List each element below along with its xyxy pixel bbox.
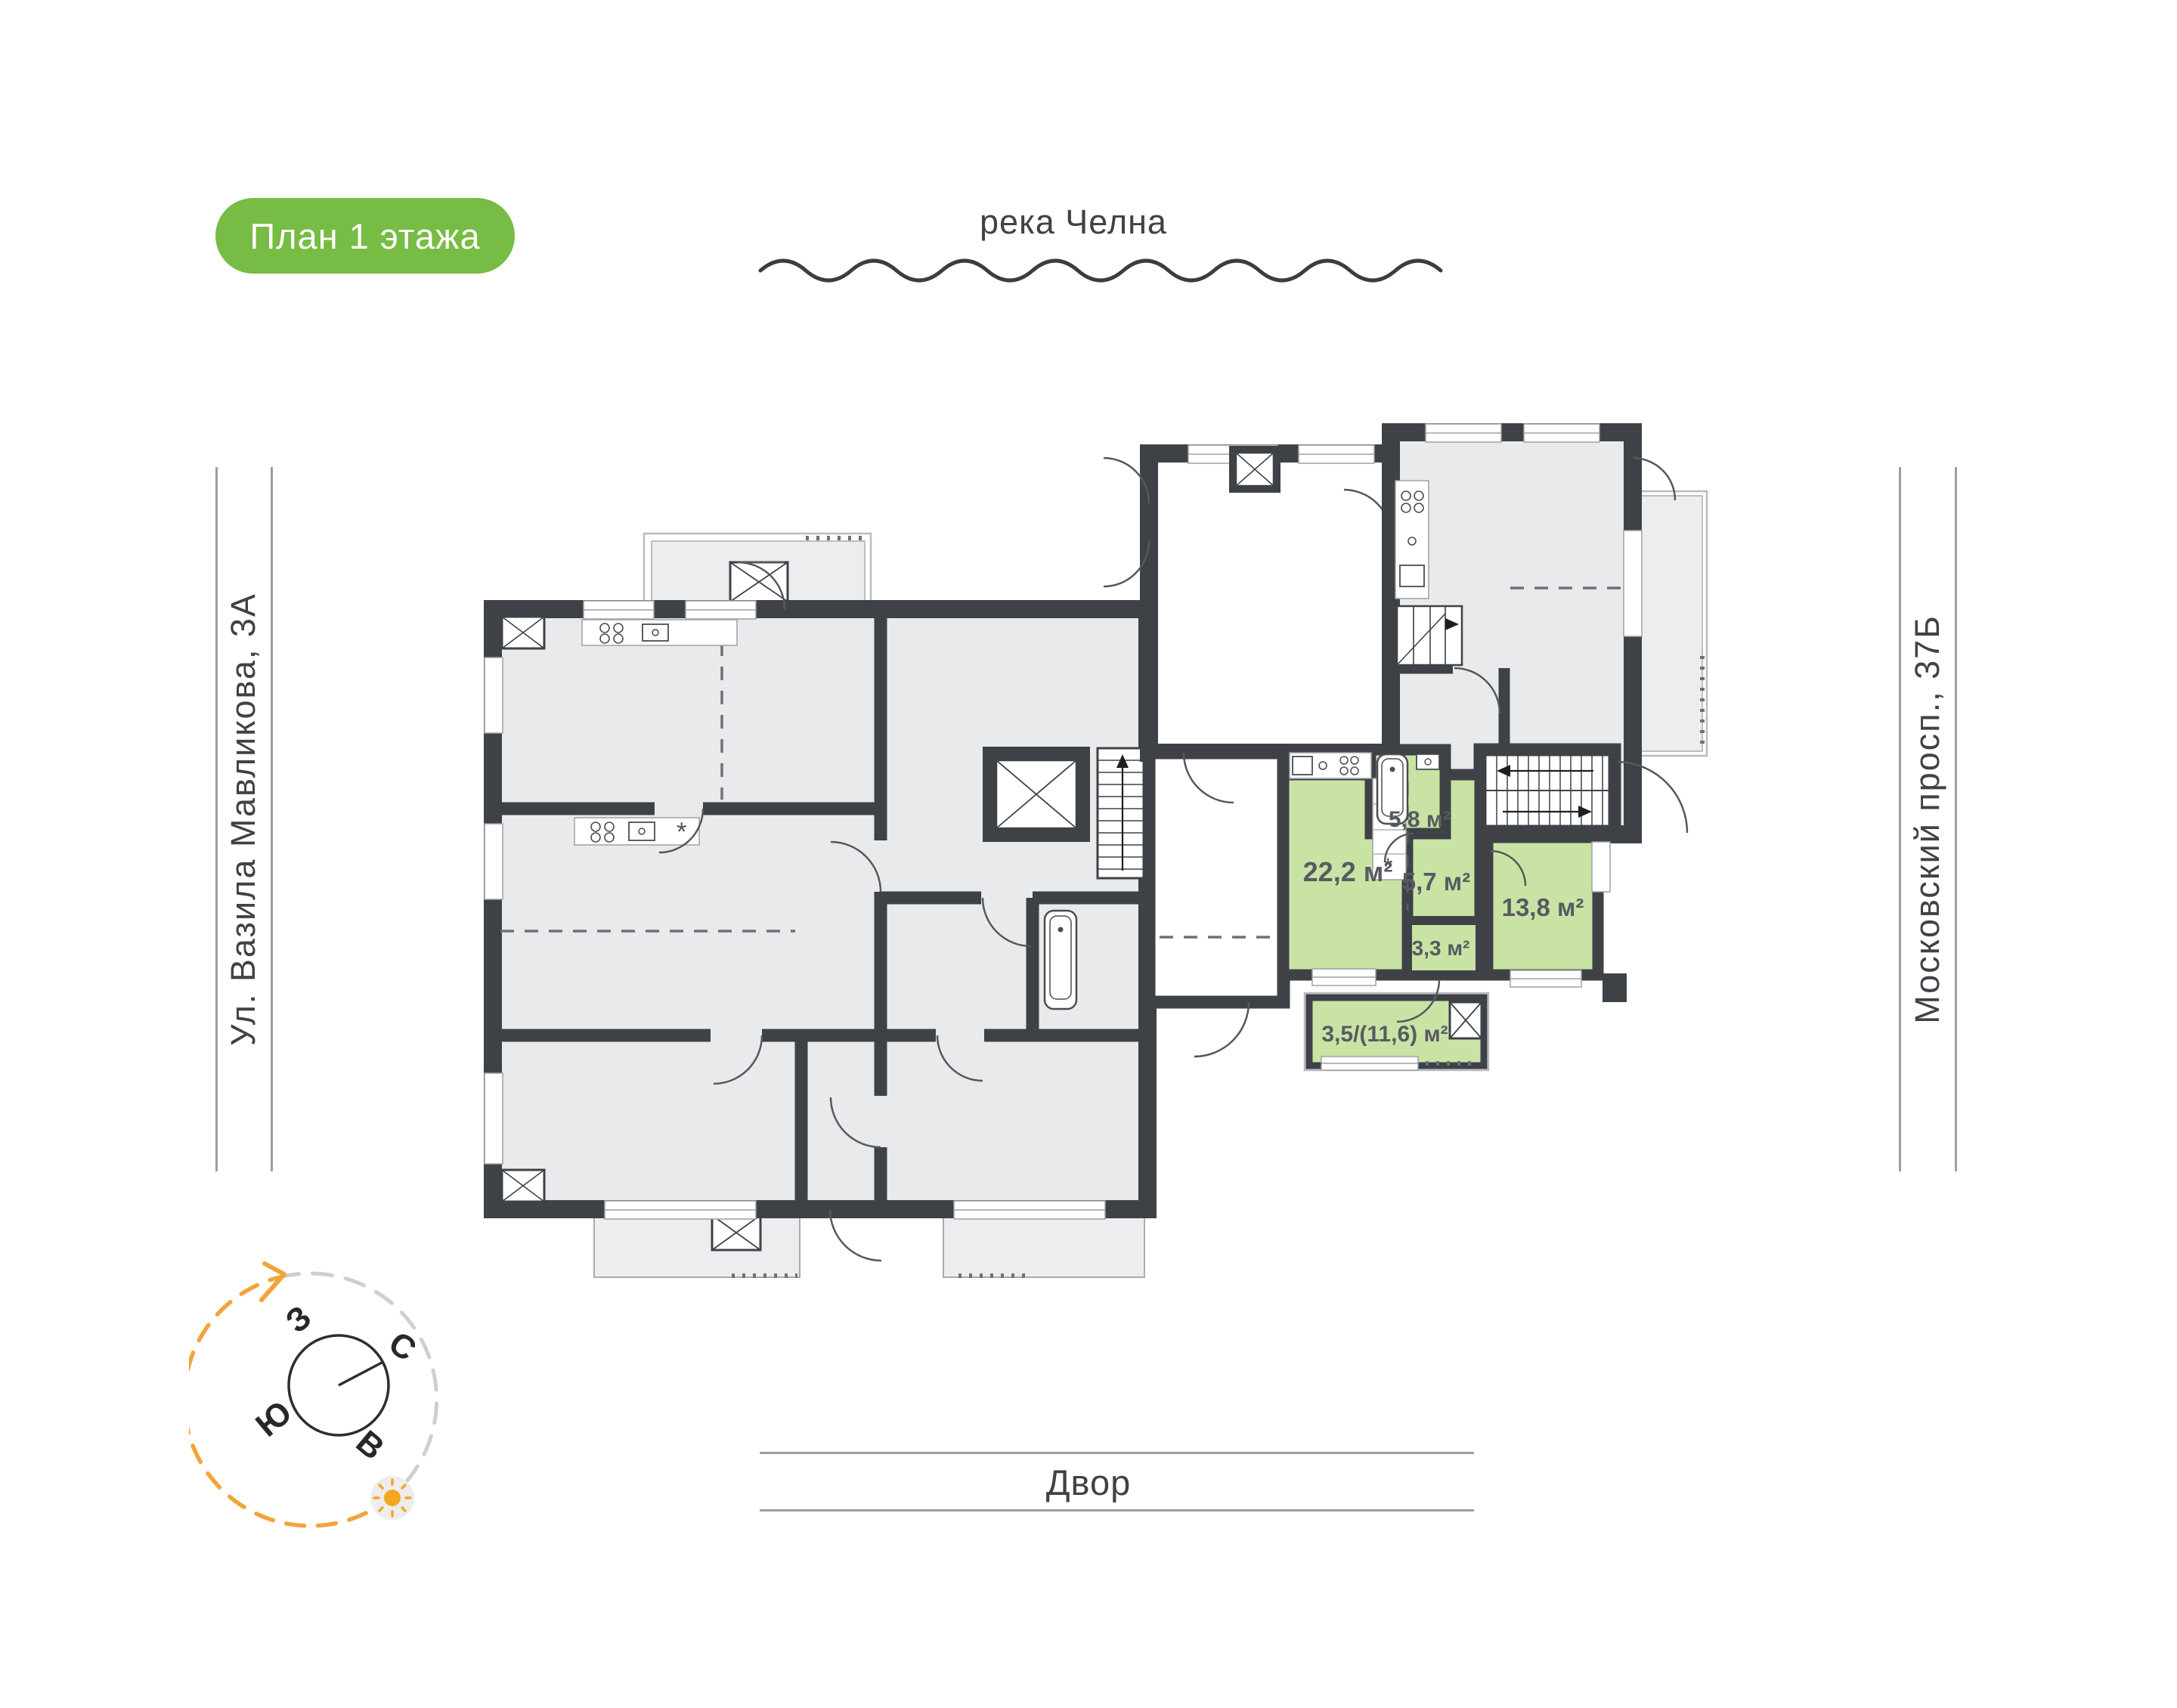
- bathtub-icon: [1045, 911, 1076, 1009]
- room-area-label: 3,5/(11,6) м²: [1321, 1022, 1448, 1047]
- kitchen-fixtures-icon: [582, 620, 737, 645]
- internal-stair: [1397, 606, 1462, 665]
- compass: З С Ю В: [189, 1232, 506, 1557]
- kitchen-fixtures-icon: [1290, 753, 1371, 778]
- room-area-label: 3,3 м²: [1412, 936, 1470, 960]
- svg-text:*: *: [677, 818, 686, 846]
- sun-path-arrow-icon: [262, 1264, 284, 1300]
- room-area-label: 22,2 м²: [1303, 856, 1393, 887]
- room-area-label: 5,7 м²: [1402, 868, 1470, 896]
- sink-icon: [1417, 754, 1439, 769]
- compass-north-label: С: [382, 1324, 423, 1368]
- sun-icon: [374, 1480, 410, 1516]
- shaft-box-icon: [712, 1215, 760, 1250]
- left-building: *: [485, 562, 1147, 1261]
- kitchen-fixtures-icon: [1395, 481, 1429, 599]
- room-area-label: 5,8 м²: [1389, 807, 1451, 832]
- stairwell: [1480, 750, 1687, 833]
- shaft-box-icon: [1229, 446, 1280, 493]
- elevator: [983, 747, 1090, 842]
- staircase: [1098, 748, 1147, 878]
- compass-west-label: З: [279, 1298, 319, 1340]
- room-area-label: 13,8 м²: [1502, 893, 1584, 921]
- floor-plan-page: План 1 этажа река Челна Ул. Вазила Мавли…: [0, 0, 2177, 1708]
- kitchen-fixtures-icon: *: [574, 818, 699, 846]
